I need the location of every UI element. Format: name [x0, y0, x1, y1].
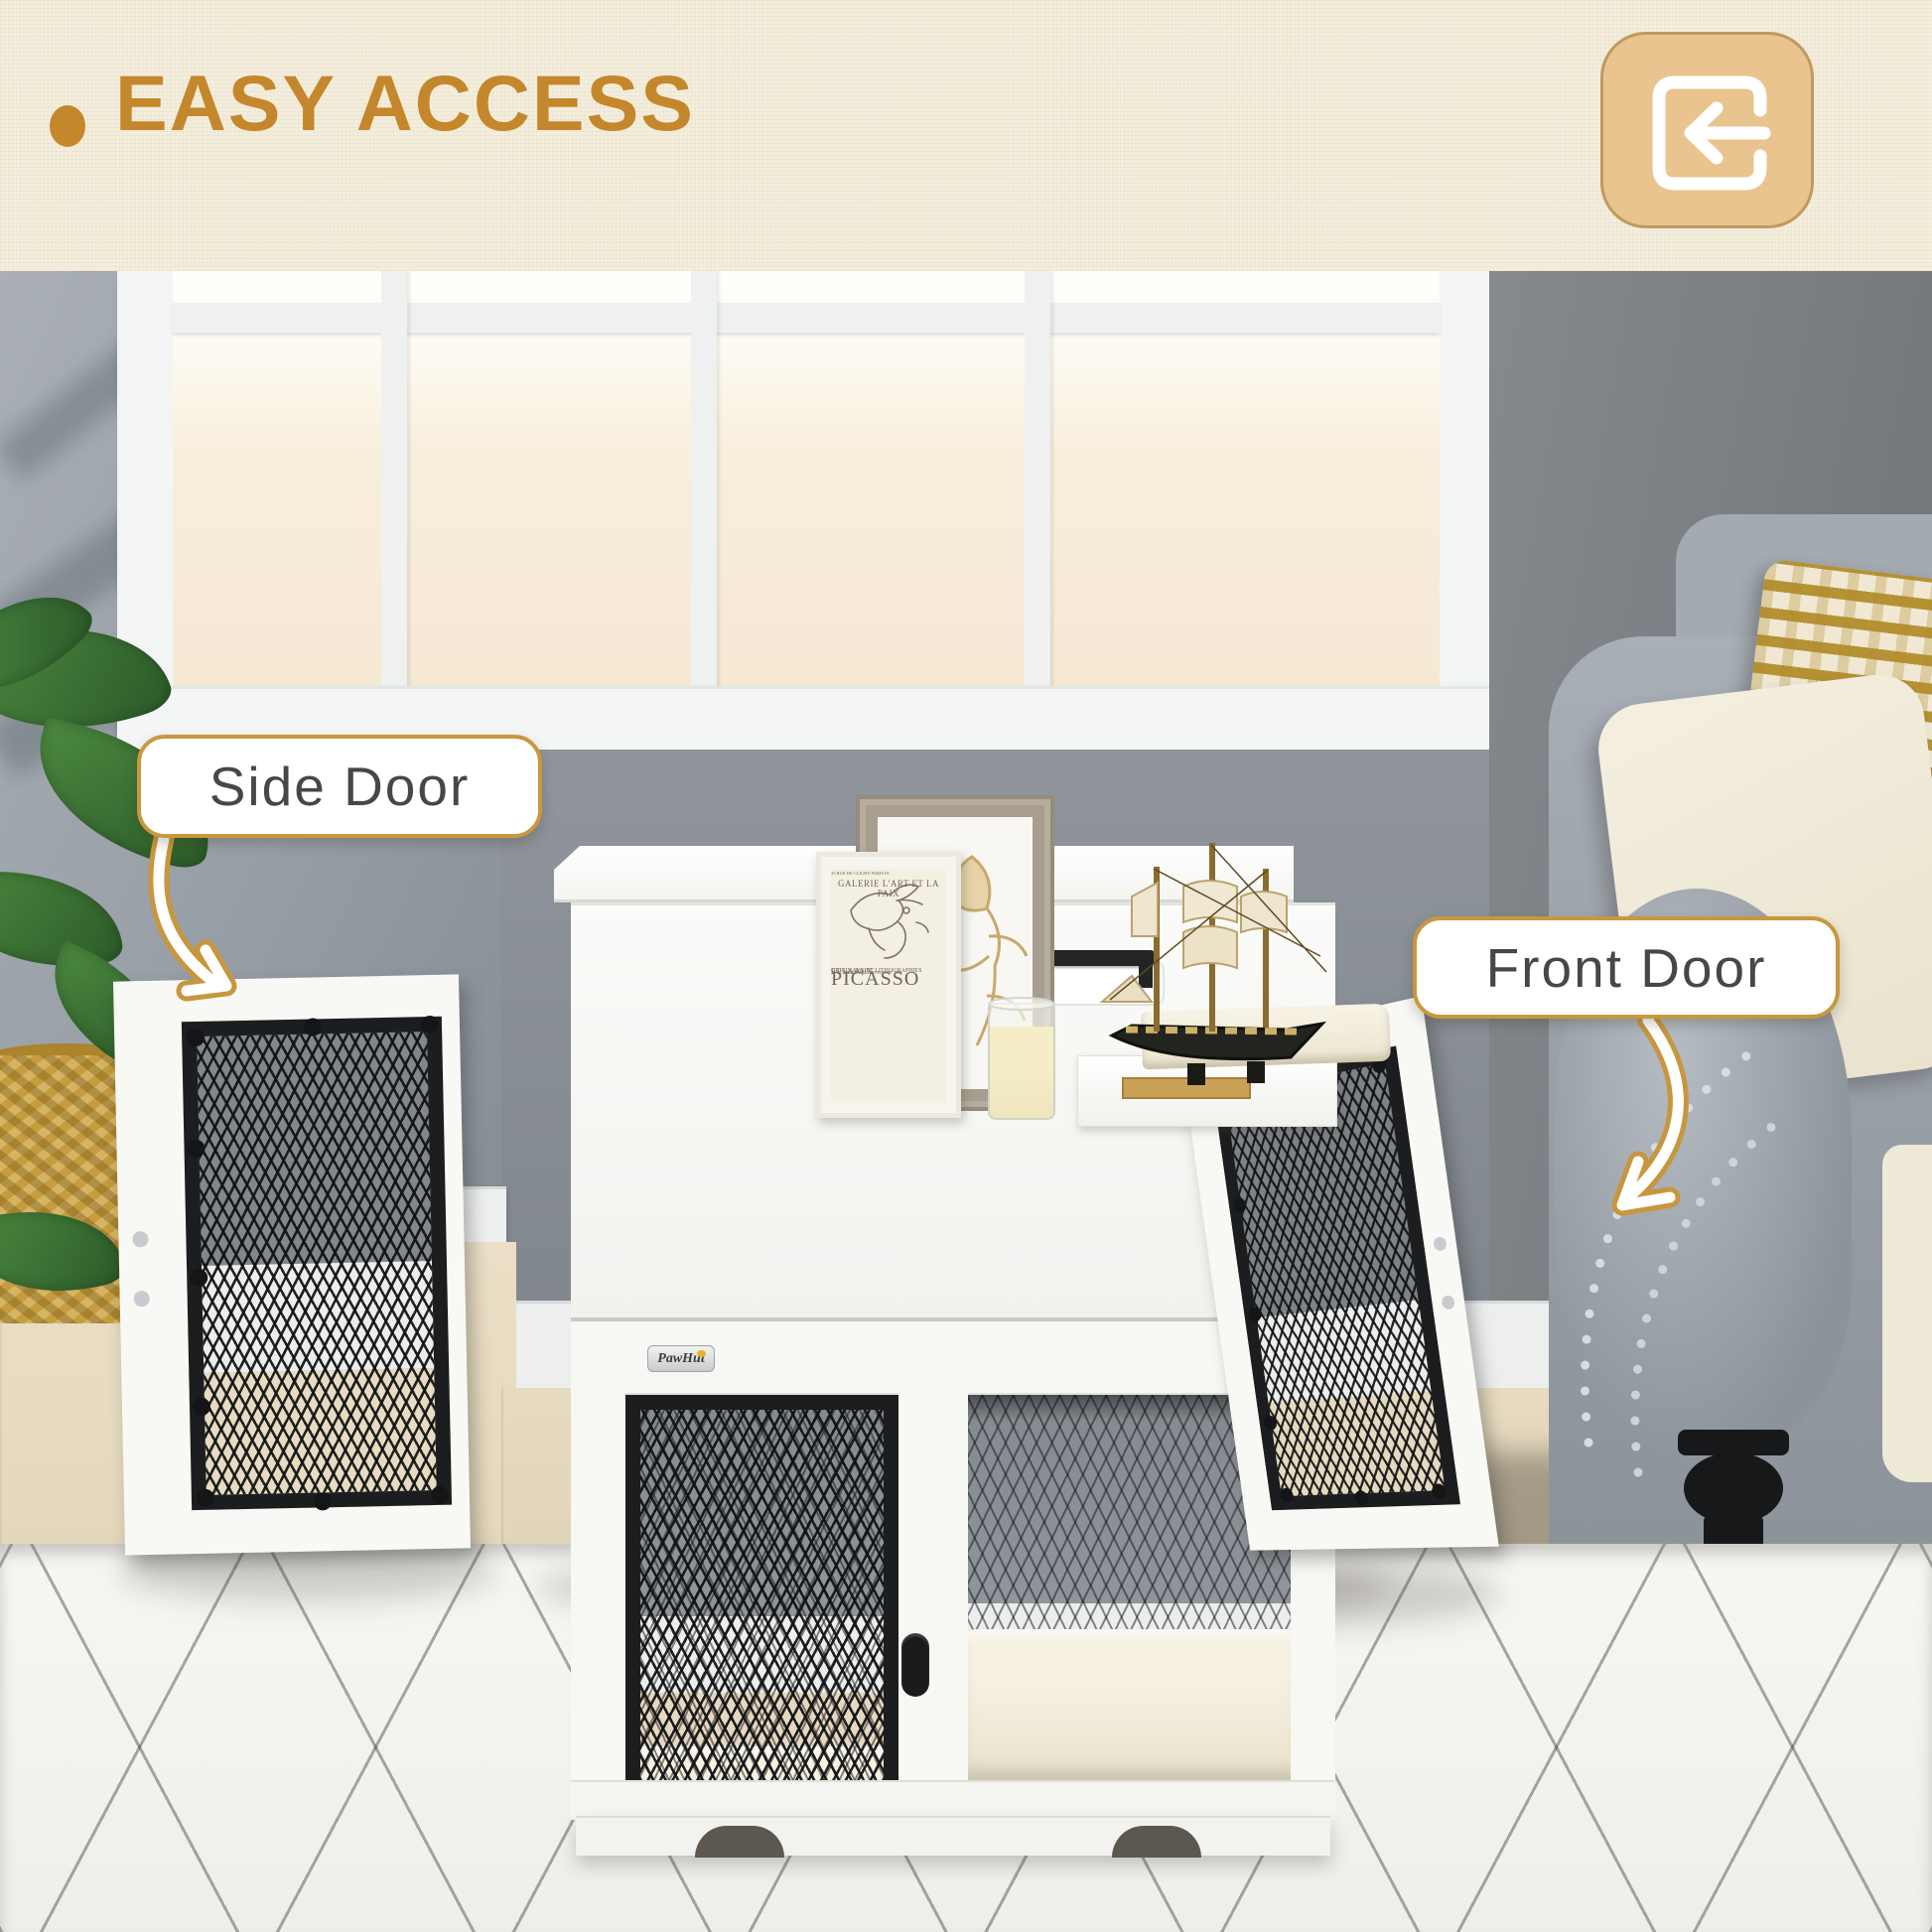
- base-arch-cutout: [695, 1826, 784, 1858]
- candle-rim: [988, 997, 1055, 1011]
- poster-gallery-line: GALERIE L'ART ET LA PAIX: [831, 879, 946, 898]
- side-door-mesh-window: [182, 1017, 452, 1510]
- crate-interior-view: [625, 1395, 898, 1820]
- pet-cushion: [968, 1629, 1291, 1780]
- picture-frame-white: GALERIE L'ART ET LA PAIX 45 RUE DE CLICH…: [816, 852, 961, 1118]
- poster-dates-line: 22 OCTOBRE – 13 NOVEMBRE 1951: [831, 970, 902, 975]
- candle: [988, 1003, 1055, 1120]
- crate-left-stile: [571, 1321, 625, 1820]
- front-door-callout: Front Door: [1413, 916, 1840, 1019]
- page-title: EASY ACCESS: [115, 58, 695, 149]
- paw-icon: [697, 1350, 706, 1357]
- drawer-handle-post: [1139, 962, 1153, 988]
- product-marketing-image: EASY ACCESS: [0, 0, 1932, 1932]
- living-room-photo: PawHut: [0, 271, 1932, 1932]
- ship-stand: [1122, 1077, 1251, 1099]
- header-banner: EASY ACCESS: [0, 0, 1932, 271]
- side-door-label: Side Door: [209, 755, 471, 818]
- brand-badge: PawHut: [647, 1345, 715, 1372]
- side-door-callout: Side Door: [137, 735, 542, 838]
- front-door-label: Front Door: [1486, 936, 1767, 1000]
- bullet-dot: [50, 105, 85, 147]
- sign-in-icon-glyph: [1645, 69, 1774, 198]
- window-mullion: [381, 271, 407, 690]
- door-latch[interactable]: [901, 1633, 929, 1697]
- throw-blanket: [1882, 1145, 1932, 1482]
- open-book: [1141, 1004, 1391, 1070]
- poster-address-line: 45 RUE DE CLICHY PARIS IX: [831, 871, 890, 876]
- base-arch-cutout: [1112, 1826, 1201, 1858]
- crate-base: [576, 1816, 1330, 1856]
- crate-center-post: [898, 1321, 968, 1820]
- window: [117, 271, 1497, 750]
- fixed-mesh-panel: [625, 1395, 898, 1820]
- window-mullion: [691, 271, 717, 690]
- window-mullion: [173, 303, 1440, 333]
- sign-in-icon: [1600, 32, 1814, 228]
- window-mullion: [1025, 271, 1050, 690]
- picasso-poster: GALERIE L'ART ET LA PAIX 45 RUE DE CLICH…: [831, 869, 946, 1101]
- window-panes: [173, 271, 1440, 690]
- side-door-open[interactable]: [113, 974, 471, 1555]
- crate-bottom-rail: [571, 1780, 1335, 1820]
